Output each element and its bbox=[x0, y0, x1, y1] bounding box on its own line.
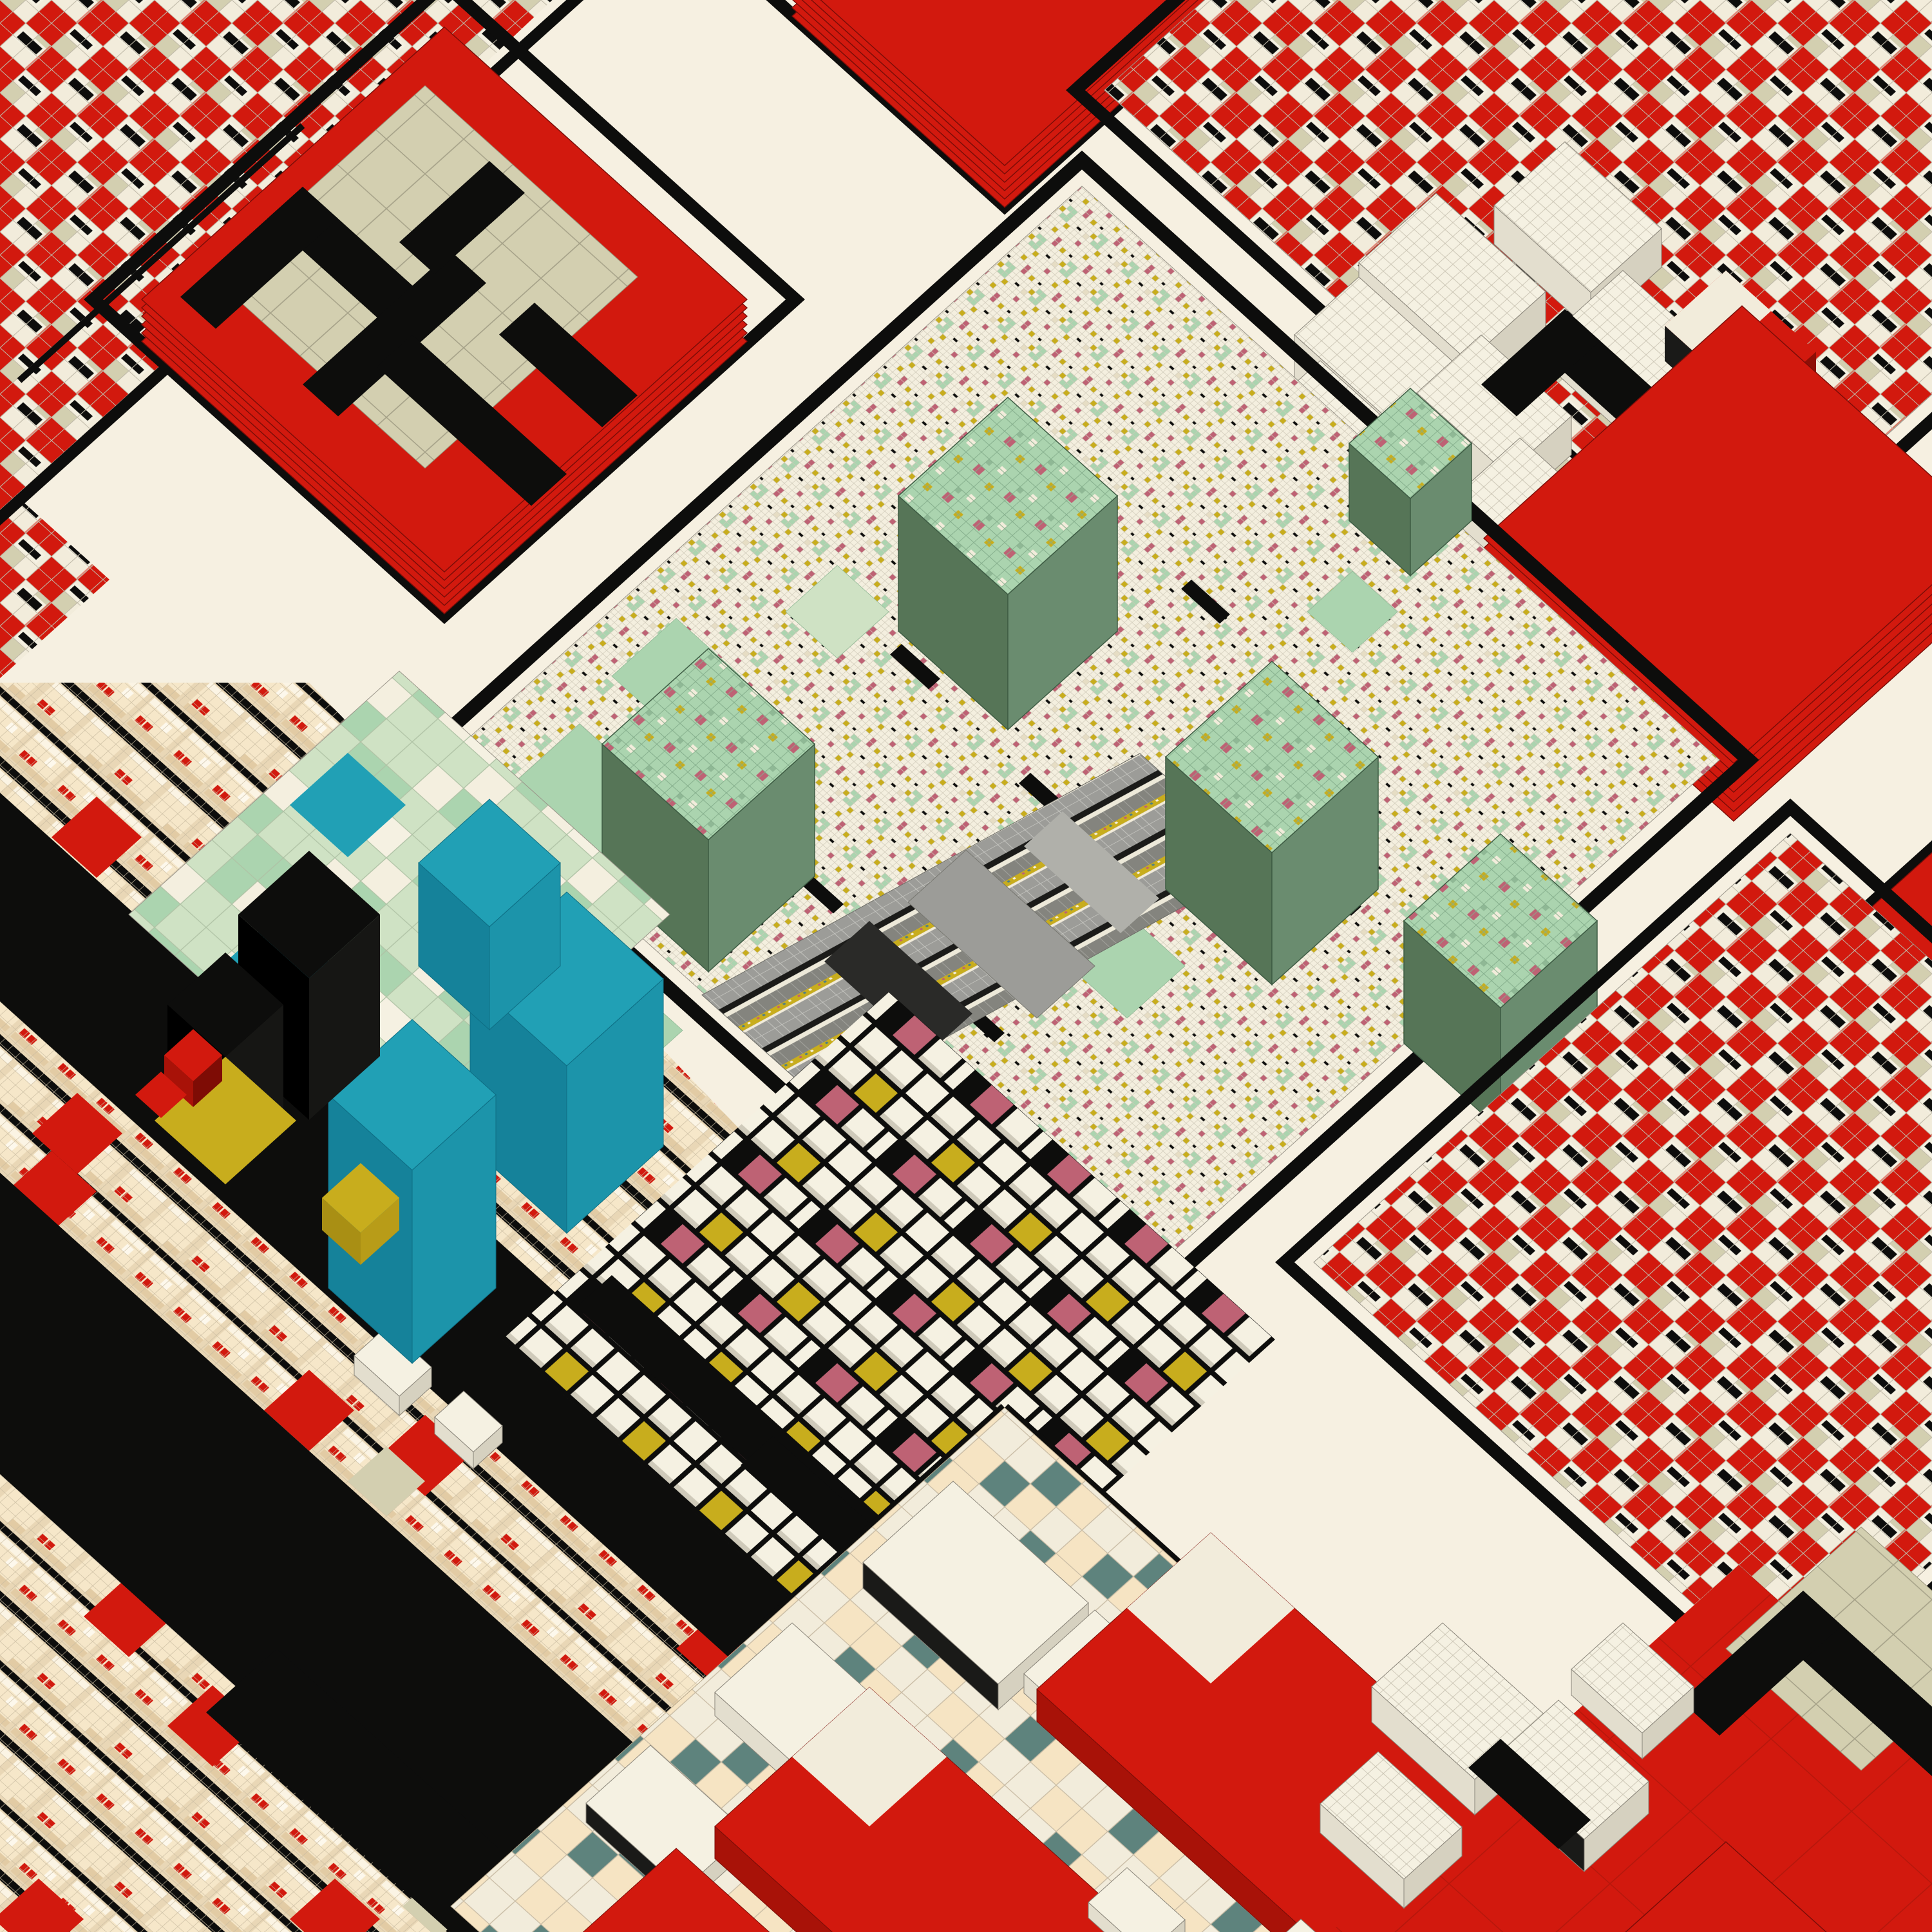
isometric-city-artwork bbox=[0, 0, 1932, 1932]
generative-isometric-city-map bbox=[0, 0, 1932, 1932]
